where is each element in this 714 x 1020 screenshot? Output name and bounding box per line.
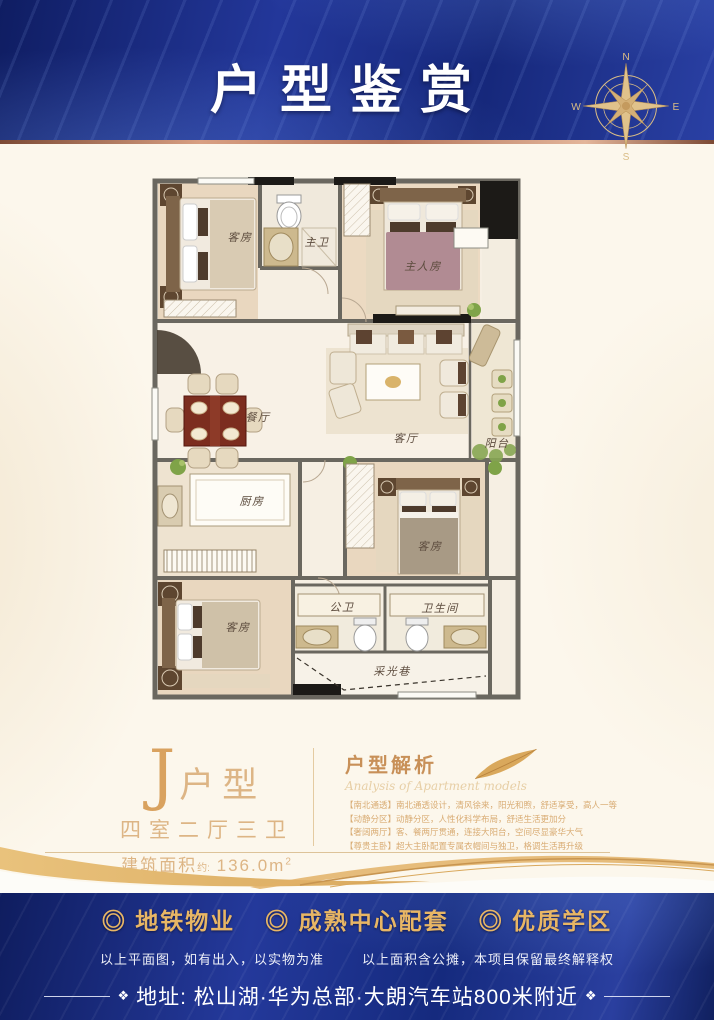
unit-name: J户型 [100,744,314,808]
compass-e: E [672,102,679,113]
address-line-right [604,996,670,997]
room-label-dining: 餐厅 [246,411,271,424]
highlights-row: ◎ 地铁物业 ◎ 成熟中心配套 ◎ 优质学区 [0,893,714,936]
ornament-left-icon: ❖ [117,988,129,1004]
compass-w: W [571,102,581,113]
analysis-subtitle: Analysis of Apartment models [345,779,597,793]
ornament-right-icon: ❖ [585,988,597,1004]
disclaimer-right: 以上面积含公摊，本项目保留最终解释权 [362,949,614,968]
highlight-item: ◎ 地铁物业 [102,902,235,936]
floor-plan: 客房 主卫 主人房 餐厅 客厅 阳台 厨房 客房 客房 公卫 卫生间 采光巷 [148,176,522,704]
room-label-kitchen: 厨房 [240,495,265,508]
room-label-master-bedroom: 主人房 [404,260,442,273]
room-label-bedroom-bottom: 客房 [226,621,251,634]
disclaimer-row: 以上平面图，如有出入，以实物为准 以上面积含公摊，本项目保留最终解释权 [0,949,714,968]
room-label-master-bath: 主卫 [305,236,330,249]
unit-letter: J [149,736,175,813]
room-label-light-lane: 采光巷 [373,665,411,678]
analysis-item: 【动静分区】动静分区，人性化科学布局，舒适生活更加分 [345,813,597,827]
unit-type-suffix: 户型 [179,766,265,805]
section-divider [313,748,314,846]
feather-icon [463,747,551,781]
address-row: ❖ 地址: 松山湖·华为总部·大朗汽车站800米附近 ❖ [0,981,714,1011]
room-label-bathroom: 卫生间 [421,602,459,615]
address-text: 地址: 松山湖·华为总部·大朗汽车站800米附近 [136,981,578,1011]
room-label-bedroom-top: 客房 [228,231,253,244]
room-label-living: 客厅 [394,432,419,445]
compass-s: S [623,152,630,162]
gold-wave-band [0,835,714,893]
highlight-item: ◎ 优质学区 [479,902,612,936]
room-label-public-bath: 公卫 [330,601,355,614]
highlight-item: ◎ 成熟中心配套 [265,902,448,936]
compass-icon: N E S W [570,50,682,162]
analysis-item: 【南北通透】南北通透设计，清风徐来，阳光和煦，舒适享受，高人一等 [345,799,597,813]
disclaimer-left: 以上平面图，如有出入，以实物为准 [100,949,324,968]
room-label-balcony: 阳台 [485,437,510,450]
decorative-wash-right [540,300,714,820]
room-label-bedroom-mid: 客房 [418,540,443,553]
compass-n: N [622,52,629,63]
footer-banner: ◎ 地铁物业 ◎ 成熟中心配套 ◎ 优质学区 以上平面图，如有出入，以实物为准 … [0,893,714,1020]
address-line-left [44,996,110,997]
